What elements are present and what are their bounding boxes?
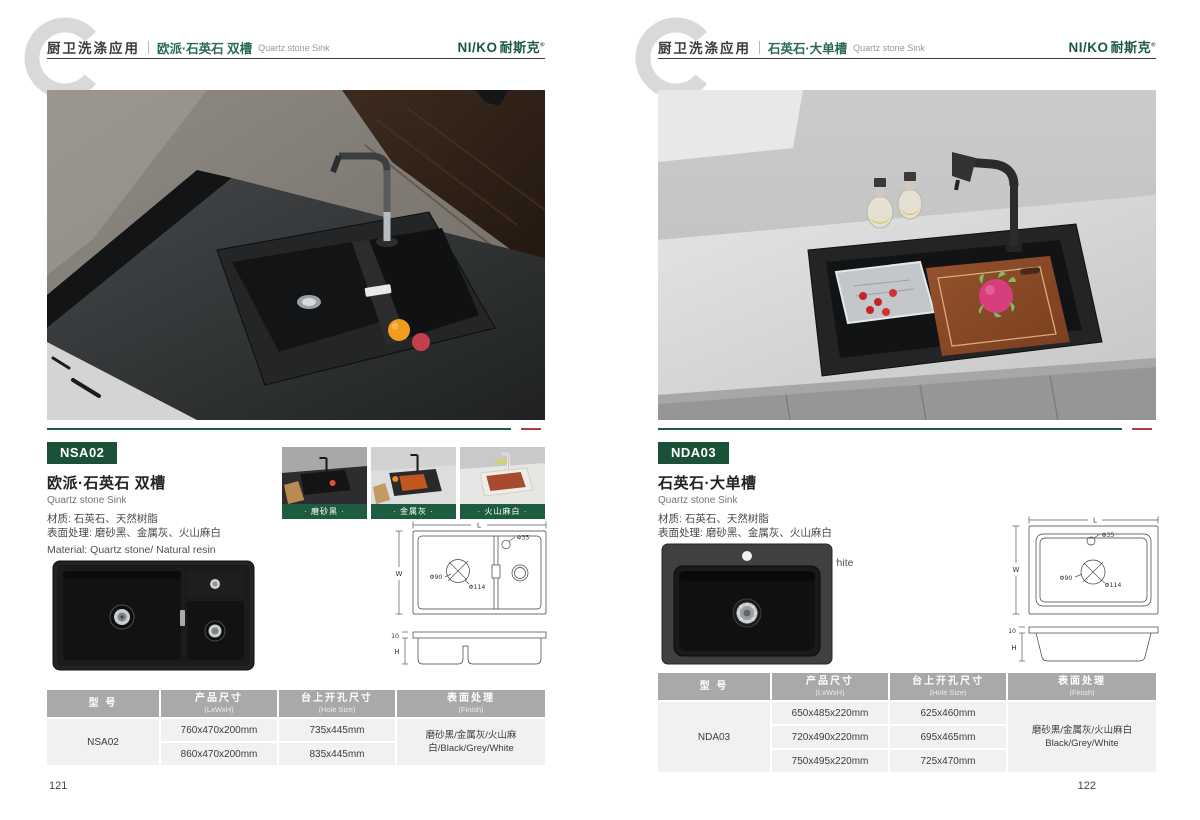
swatch-metal-gray-photo	[371, 447, 456, 504]
cell-size-2: 860x470x200mm	[161, 743, 277, 765]
technical-drawing-single: L W Φ35 Φ90 Φ114 10 H	[1005, 513, 1165, 665]
catalog-page-122: 厨卫洗涤应用 石英石·大单槽 Quartz stone Sink NI/KO耐斯…	[658, 0, 1156, 820]
product-photo-single-sink	[658, 540, 836, 668]
header-title-cn: 欧派·石英石 双槽	[157, 38, 252, 57]
col-header-hole: 台上开孔尺寸(Hole Size)	[890, 673, 1006, 700]
col-header-size: 产品尺寸(LxWxH)	[161, 690, 277, 717]
product-photo-double-sink	[47, 555, 260, 676]
col-header-model: 型 号	[47, 690, 159, 717]
brand-logo-reg: ®	[540, 43, 545, 49]
header-category: 厨卫洗涤应用	[658, 37, 751, 57]
dim-L: L	[1093, 517, 1097, 525]
drawing-lines	[396, 522, 547, 665]
small-bowl-drain	[205, 621, 225, 641]
photo-divider	[658, 428, 1156, 430]
header-title-en: Quartz stone Sink	[258, 43, 330, 53]
dim-H: H	[1011, 644, 1016, 652]
dim-hole: Φ35	[517, 535, 530, 542]
product-name-cn: 石英石·大单槽	[658, 472, 933, 493]
cell-model: NSA02	[47, 719, 159, 765]
dim-hole: Φ35	[1102, 532, 1115, 539]
page-number: 122	[1078, 780, 1096, 792]
dim-drain2: Φ114	[1105, 582, 1122, 589]
page-number: 121	[49, 780, 67, 792]
dim-H: H	[394, 648, 399, 656]
brand-logo-reg: ®	[1151, 43, 1156, 49]
product-name-en: Quartz stone Sink	[658, 495, 933, 506]
cell-model: NDA03	[658, 702, 770, 772]
brand-logo: NI/KO耐斯克®	[458, 37, 545, 56]
cell-finish: 磨砂黑/金属灰/火山麻白/Black/Grey/White	[397, 719, 545, 765]
model-badge: NDA03	[658, 442, 729, 464]
header-divider	[148, 41, 149, 54]
surface-cn: 表面处理: 磨砂黑、金属灰、火山麻白	[47, 526, 322, 540]
brand-logo: NI/KO耐斯克®	[1069, 37, 1156, 56]
big-bowl-drain	[110, 605, 134, 629]
dim-W: W	[396, 570, 403, 578]
spec-table: 型 号 产品尺寸(LxWxH) 台上开孔尺寸(Hole Size) 表面处理(F…	[47, 690, 545, 765]
hero-photo-single-sink	[658, 90, 1156, 420]
header-divider	[759, 41, 760, 54]
colander-basket	[836, 262, 934, 323]
swatch-dot-white: · 火山麻白 ·	[460, 447, 545, 519]
col-header-hole: 台上开孔尺寸(Hole Size)	[279, 690, 395, 717]
dim-drain2: Φ114	[469, 584, 486, 591]
dim-L: L	[477, 522, 481, 530]
material-cn: 材质: 石英石、天然树脂	[47, 512, 322, 526]
brand-logo-cn: 耐斯克	[500, 40, 541, 55]
product-info: NSA02 欧派·石英石 双槽 Quartz stone Sink 材质: 石英…	[47, 442, 322, 571]
header-category: 厨卫洗涤应用	[47, 37, 140, 57]
faucet-hole	[742, 551, 752, 561]
hero-photo-double-sink	[47, 90, 545, 420]
swatch-metal-gray: · 金属灰 ·	[371, 447, 456, 519]
catalog-page-121: 厨卫洗涤应用 欧派·石英石 双槽 Quartz stone Sink NI/KO…	[47, 0, 545, 820]
brand-logo-en: NI/KO	[458, 40, 498, 55]
swatch-frosted-black-photo	[282, 447, 367, 504]
cell-hole-2: 835x445mm	[279, 743, 395, 765]
swatch-frosted-black: · 磨砂黑 ·	[282, 447, 367, 519]
header-rule	[47, 58, 545, 59]
photo-divider	[47, 428, 545, 430]
spec-table: 型 号 产品尺寸(LxWxH) 台上开孔尺寸(Hole Size) 表面处理(F…	[658, 673, 1156, 772]
model-badge: NSA02	[47, 442, 117, 464]
swatch-frosted-black-label: · 磨砂黑 ·	[282, 504, 367, 519]
cell-hole-1: 625x460mm	[890, 702, 1006, 724]
divider-red-segment	[521, 428, 541, 430]
drain	[733, 599, 761, 627]
hero-photo-scene	[47, 90, 545, 420]
brand-logo-en: NI/KO	[1069, 40, 1109, 55]
swatch-dot-white-photo	[460, 447, 545, 504]
cell-size-1: 650x485x220mm	[772, 702, 888, 724]
cell-size-2: 720x490x220mm	[772, 726, 888, 748]
material-cn: 材质: 石英石、天然树脂	[658, 512, 933, 526]
col-header-size: 产品尺寸(LxWxH)	[772, 673, 888, 700]
cell-finish: 磨砂黑/金属灰/火山麻白Black/Grey/White	[1008, 702, 1156, 772]
dim-drain: Φ90	[430, 574, 443, 581]
drawing-lines	[1013, 517, 1159, 662]
product-name-cn: 欧派·石英石 双槽	[47, 472, 322, 493]
divider-clip	[180, 610, 185, 626]
cell-hole-2: 695x465mm	[890, 726, 1006, 748]
hero-photo-scene	[658, 90, 1156, 420]
dim-W: W	[1013, 566, 1020, 574]
dim-rim: 10	[1008, 628, 1016, 635]
product-name-en: Quartz stone Sink	[47, 495, 322, 506]
header-rule	[658, 58, 1156, 59]
col-header-finish: 表面处理(Finish)	[397, 690, 545, 717]
cell-hole-1: 735x445mm	[279, 719, 395, 741]
cell-size-1: 760x470x200mm	[161, 719, 277, 741]
swatch-metal-gray-label: · 金属灰 ·	[371, 504, 456, 519]
header-title-cn: 石英石·大单槽	[768, 38, 847, 57]
col-header-model: 型 号	[658, 673, 770, 700]
swatch-dot-white-label: · 火山麻白 ·	[460, 504, 545, 519]
dim-drain: Φ90	[1060, 575, 1073, 582]
cell-hole-3: 725x470mm	[890, 750, 1006, 772]
divider-red-segment	[1132, 428, 1152, 430]
col-header-finish: 表面处理(Finish)	[1008, 673, 1156, 700]
dim-rim: 10	[391, 633, 399, 640]
color-swatches: · 磨砂黑 · · 金属灰 ·	[282, 447, 545, 519]
surface-cn: 表面处理: 磨砂黑、金属灰、火山麻白	[658, 526, 933, 540]
brand-logo-cn: 耐斯克	[1111, 40, 1152, 55]
divider-green-segment	[47, 428, 511, 430]
cell-size-3: 750x495x220mm	[772, 750, 888, 772]
catalog-spread: 厨卫洗涤应用 欧派·石英石 双槽 Quartz stone Sink NI/KO…	[0, 0, 1200, 820]
divider-green-segment	[658, 428, 1122, 430]
drawing-labels: L W Φ35 Φ90 Φ114 10 H	[1008, 517, 1121, 653]
technical-drawing-double: L W Φ35 Φ90 Φ114 10 H	[385, 518, 550, 670]
header-title-en: Quartz stone Sink	[853, 43, 925, 53]
